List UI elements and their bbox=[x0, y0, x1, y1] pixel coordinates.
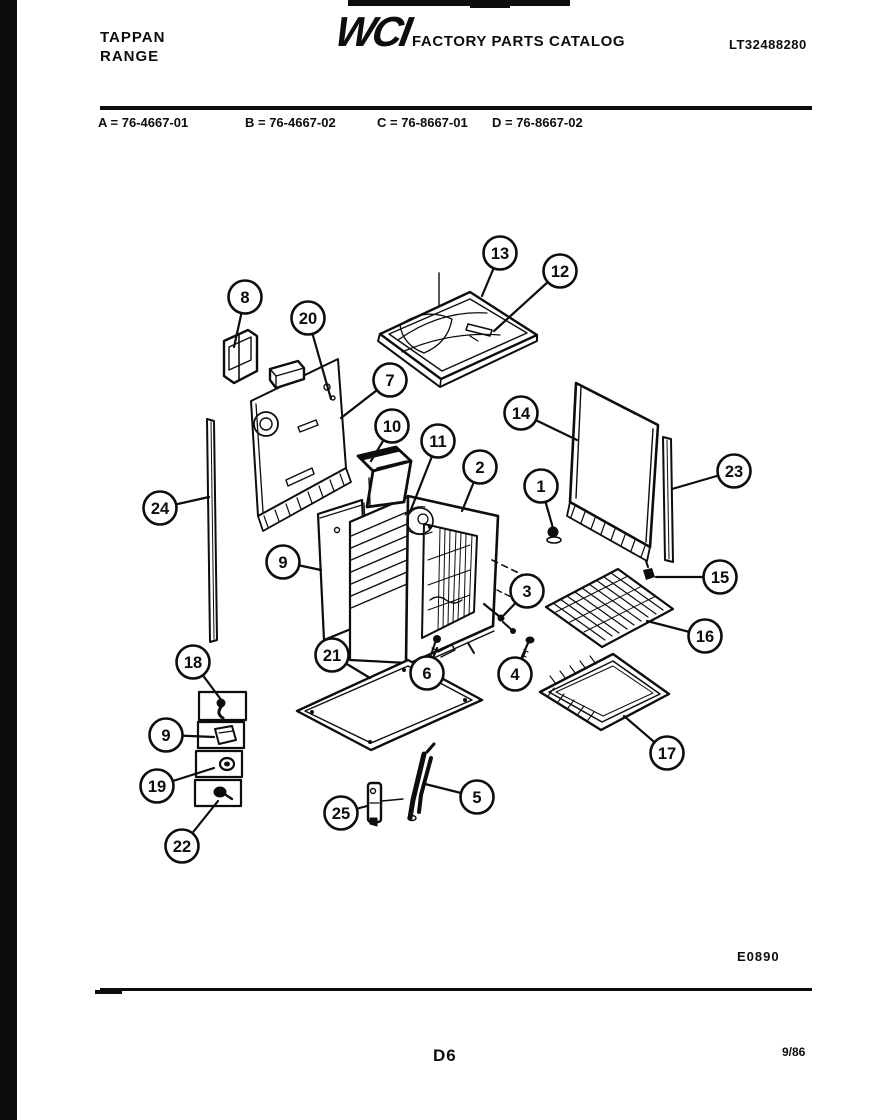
part-bracket-8 bbox=[224, 330, 257, 383]
callout-number: 7 bbox=[385, 372, 394, 390]
callout-25: 25 bbox=[325, 797, 368, 830]
callout-15: 15 bbox=[656, 561, 737, 594]
part-glide-15 bbox=[643, 561, 655, 580]
callout-number: 6 bbox=[422, 665, 431, 683]
callout-16: 16 bbox=[647, 620, 722, 653]
part-trim-strip-right bbox=[663, 437, 673, 562]
callout-number: 20 bbox=[299, 310, 317, 328]
part-vent-duct bbox=[358, 447, 411, 507]
part-bottom-pan bbox=[297, 660, 482, 750]
part-side-panel-right bbox=[567, 383, 658, 561]
callout-number: 13 bbox=[491, 245, 509, 263]
callout-24: 24 bbox=[144, 492, 210, 525]
callout-number: 19 bbox=[148, 778, 166, 796]
revision-date: 9/86 bbox=[782, 1045, 805, 1059]
callout-number: 3 bbox=[522, 583, 531, 601]
callout-number: 14 bbox=[512, 405, 531, 423]
callout-number: 24 bbox=[151, 500, 170, 518]
part-bracket-25 bbox=[368, 783, 403, 826]
callout-22: 22 bbox=[166, 801, 219, 863]
callout-3: 3 bbox=[504, 575, 544, 616]
callout-23: 23 bbox=[672, 455, 751, 490]
form-code: E0890 bbox=[737, 949, 780, 964]
callout-number: 25 bbox=[332, 805, 350, 823]
callout-9: 9 bbox=[267, 546, 322, 579]
callout-4: 4 bbox=[499, 652, 532, 691]
callout-number: 5 bbox=[472, 789, 481, 807]
callout-number: 18 bbox=[184, 654, 202, 672]
callout-number: 10 bbox=[383, 418, 401, 436]
callout-2: 2 bbox=[462, 451, 497, 512]
callout-1: 1 bbox=[525, 470, 558, 529]
part-back-panel bbox=[251, 359, 351, 531]
callout-number: 22 bbox=[173, 838, 191, 856]
footer-rule bbox=[100, 988, 812, 991]
callout-14: 14 bbox=[505, 397, 578, 441]
callout-number: 9 bbox=[278, 554, 287, 572]
callout-5: 5 bbox=[425, 781, 494, 814]
page-number: D6 bbox=[433, 1046, 457, 1066]
callout-number: 2 bbox=[475, 459, 484, 477]
callout-number: 17 bbox=[658, 745, 676, 763]
callout-17: 17 bbox=[624, 716, 684, 770]
part-oven-rack bbox=[546, 569, 673, 647]
part-drawer-pan bbox=[540, 654, 669, 730]
callout-number: 16 bbox=[696, 628, 714, 646]
hardware-boxes bbox=[195, 692, 246, 806]
part-trim-strip-left bbox=[207, 419, 217, 642]
part-foot bbox=[547, 527, 561, 544]
callout-number: 11 bbox=[429, 433, 446, 451]
part-latch-clip-5 bbox=[408, 744, 434, 821]
callout-13: 13 bbox=[482, 237, 517, 297]
callout-number: 8 bbox=[240, 289, 249, 307]
callout-number: 12 bbox=[551, 263, 569, 281]
callout-number: 15 bbox=[711, 569, 729, 587]
callout-number: 4 bbox=[510, 666, 520, 684]
callout-number: 21 bbox=[323, 647, 341, 665]
callout-number: 23 bbox=[725, 463, 743, 481]
callout-number: 9 bbox=[161, 727, 170, 745]
callout-number: 1 bbox=[536, 478, 545, 496]
